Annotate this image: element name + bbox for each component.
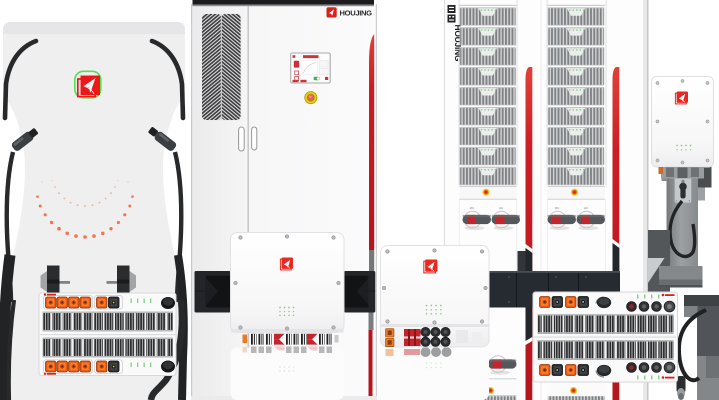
svg-text:HOUJING: HOUJING (340, 9, 373, 18)
